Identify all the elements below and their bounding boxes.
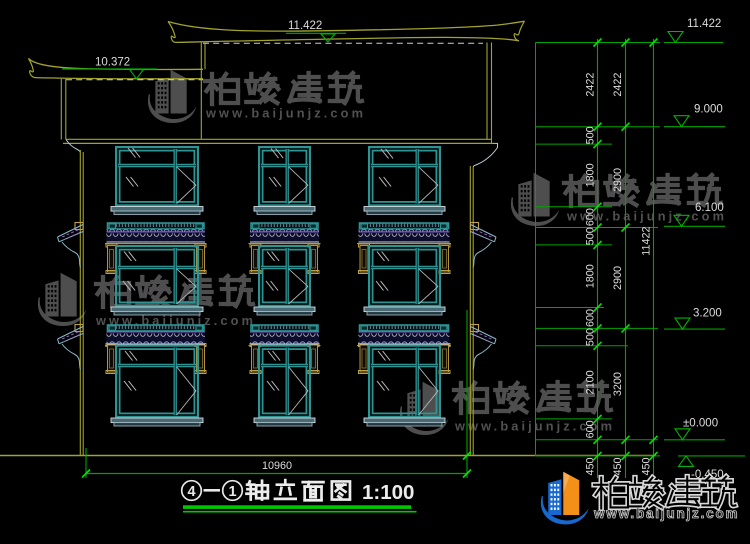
svg-text:9.000: 9.000 [694,104,723,116]
svg-text:±0.000: ±0.000 [683,418,718,430]
svg-text:2422: 2422 [585,73,597,97]
svg-text:11.422: 11.422 [288,20,322,32]
svg-text:2900: 2900 [612,266,624,290]
svg-text:500: 500 [585,328,597,346]
svg-text:www.baijunjz.com: www.baijunjz.com [593,506,739,521]
svg-text:2422: 2422 [612,73,624,97]
svg-text:1800: 1800 [585,264,597,288]
svg-text:www.baijunjz.com: www.baijunjz.com [205,106,366,121]
svg-text:3200: 3200 [612,372,624,396]
svg-text:3.200: 3.200 [693,308,722,320]
svg-text:450: 450 [612,457,624,475]
svg-text:6.100: 6.100 [695,202,724,214]
svg-text:11422: 11422 [641,226,653,255]
svg-text:450: 450 [641,457,653,475]
svg-text:500: 500 [585,126,597,144]
svg-text:1800: 1800 [585,163,597,187]
svg-text:4: 4 [187,484,195,500]
svg-text:1: 1 [228,484,236,500]
svg-text:600: 600 [585,420,597,438]
svg-text:450: 450 [585,457,597,475]
svg-text:10.372: 10.372 [95,57,130,69]
svg-text:500: 500 [585,227,597,245]
svg-text:600: 600 [585,309,597,327]
svg-text:2100: 2100 [585,370,597,394]
svg-text:2900: 2900 [612,168,624,192]
svg-text:1:100: 1:100 [362,481,414,504]
svg-text:10960: 10960 [262,460,292,472]
svg-text:600: 600 [585,208,597,226]
svg-text:11.422: 11.422 [687,18,721,30]
